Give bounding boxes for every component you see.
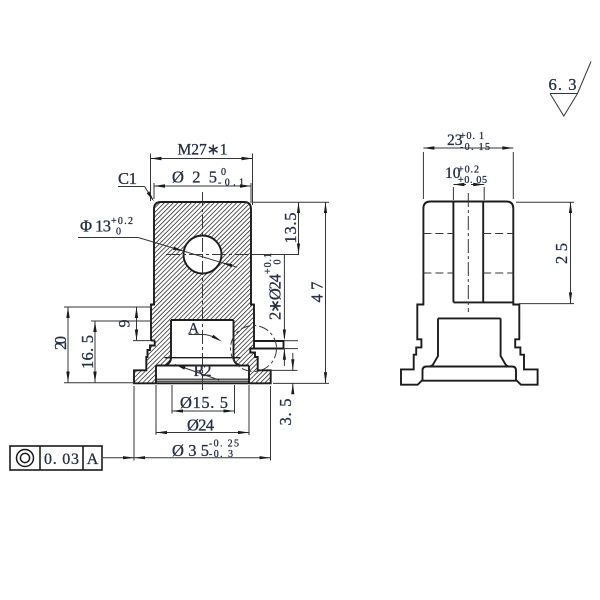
- svg-text:C1: C1: [118, 169, 137, 188]
- svg-text:R2: R2: [194, 361, 212, 380]
- svg-text:Ø24: Ø24: [187, 416, 214, 435]
- svg-text:A: A: [87, 451, 99, 468]
- svg-text:Ø35: Ø35: [172, 441, 209, 460]
- svg-text:13.5: 13.5: [281, 213, 300, 244]
- svg-text:0. 03: 0. 03: [44, 451, 79, 468]
- svg-text:+0.2: +0.2: [458, 165, 479, 176]
- svg-text:Φ 13: Φ 13: [80, 217, 111, 236]
- svg-text:-0. 25: -0. 25: [209, 439, 239, 450]
- svg-text:Ø25: Ø25: [172, 168, 217, 187]
- svg-text:M27∗1: M27∗1: [177, 142, 227, 159]
- svg-text:0: 0: [273, 260, 284, 265]
- svg-text:3. 5: 3. 5: [276, 399, 295, 426]
- svg-text:+0. 1: +0. 1: [460, 131, 484, 142]
- svg-text:+0.2: +0.2: [111, 216, 133, 227]
- svg-text:16. 5: 16. 5: [78, 335, 97, 369]
- svg-text:Ø15. 5: Ø15. 5: [180, 393, 228, 412]
- svg-text:20: 20: [51, 336, 70, 350]
- svg-text:0: 0: [221, 167, 226, 178]
- svg-text:-0. 15: -0. 15: [460, 142, 490, 153]
- svg-text:+0. 05: +0. 05: [458, 175, 487, 186]
- svg-text:6. 3: 6. 3: [549, 75, 577, 94]
- svg-text:9: 9: [117, 320, 134, 328]
- svg-text:2∗Ø24: 2∗Ø24: [266, 274, 285, 320]
- svg-text:0: 0: [116, 227, 121, 238]
